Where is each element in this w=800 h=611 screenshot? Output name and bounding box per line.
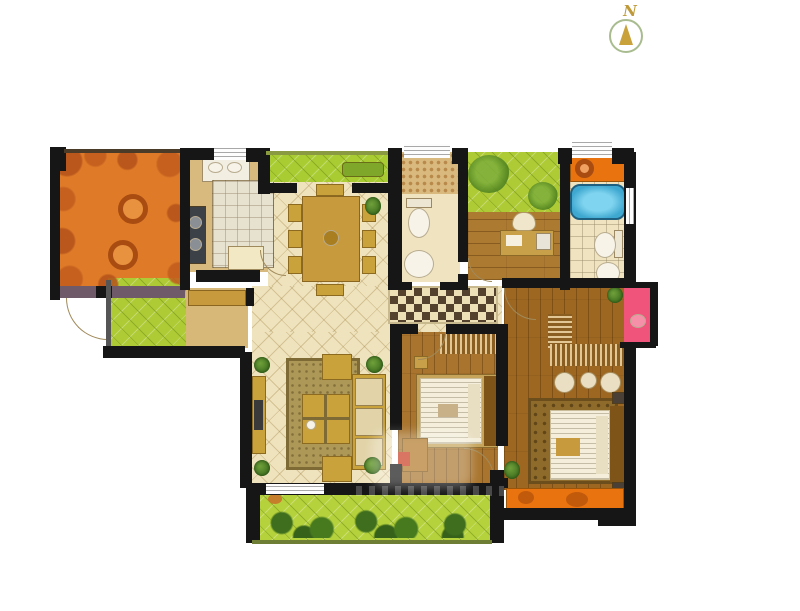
ledge-leaf — [566, 492, 588, 507]
door-arc-entry — [66, 298, 108, 340]
compass-north-label: N — [603, 2, 649, 19]
dining-chair — [362, 230, 376, 248]
watermark — [372, 432, 472, 488]
burner — [189, 216, 202, 229]
blanket — [556, 438, 580, 456]
balcony-leaf — [268, 494, 282, 504]
wall — [390, 282, 412, 290]
window-side — [626, 188, 634, 224]
pillow — [596, 416, 608, 474]
dining-chair — [316, 284, 344, 296]
wall — [196, 270, 260, 282]
desk-paper — [506, 235, 522, 246]
shoe-cabinet — [188, 290, 246, 306]
counter-sink — [575, 159, 594, 178]
wall — [440, 282, 468, 290]
pouf — [554, 372, 575, 393]
wall — [560, 150, 570, 290]
potted-plant — [607, 287, 623, 303]
window-master-bath — [572, 142, 612, 158]
wall — [240, 352, 252, 488]
armchair — [322, 354, 352, 380]
study-chair — [512, 212, 536, 231]
wall — [650, 282, 658, 346]
toilet-bowl — [594, 232, 616, 258]
terrace-chair — [118, 194, 148, 224]
window-hall-bath — [404, 144, 450, 158]
garden-bench — [342, 162, 384, 177]
wall — [246, 288, 254, 306]
balcony-door — [266, 484, 324, 494]
watermark — [356, 486, 504, 496]
wall — [50, 168, 60, 300]
pouf — [580, 372, 597, 389]
potted-plant — [254, 357, 270, 373]
wall — [266, 151, 392, 155]
bathtub — [570, 184, 626, 220]
burner — [189, 238, 202, 251]
wall — [458, 150, 468, 262]
wall — [490, 470, 504, 543]
terrace-edge-strip — [57, 286, 185, 298]
wall — [180, 148, 190, 290]
tea-set — [306, 420, 316, 430]
armchair — [322, 456, 352, 482]
wall — [64, 149, 184, 153]
platform-flower — [630, 314, 646, 328]
wall — [598, 512, 636, 526]
floor-plan: N — [0, 0, 800, 611]
tv — [254, 400, 263, 430]
sink-basin — [227, 162, 242, 173]
compass-needle-icon — [619, 24, 633, 45]
door-arc-kitchen — [260, 250, 286, 276]
garden-tree — [468, 155, 510, 193]
sink-basin — [208, 162, 223, 173]
wall — [106, 280, 111, 346]
ledge-leaf — [518, 491, 534, 504]
wash-basin — [404, 250, 434, 278]
wall — [496, 324, 508, 446]
wall — [252, 540, 492, 544]
dining-chair — [362, 256, 376, 274]
closet-horizontal — [550, 344, 628, 366]
wardrobe — [440, 334, 504, 354]
toilet-bowl — [408, 208, 430, 238]
wall — [103, 346, 245, 358]
pouf — [600, 372, 621, 393]
potted-plant — [365, 197, 381, 215]
dining-chair — [288, 230, 302, 248]
potted-plant — [504, 461, 520, 479]
wall — [446, 324, 506, 334]
wall — [388, 148, 402, 290]
dining-chair — [288, 256, 302, 274]
blanket — [438, 404, 458, 417]
compass-circle — [609, 19, 643, 53]
desk-computer — [536, 233, 551, 250]
hallway-rug — [388, 286, 498, 324]
balcony-bushes — [264, 508, 486, 538]
shower-mosaic — [400, 152, 458, 194]
potted-plant — [366, 356, 383, 373]
garden-tree — [528, 182, 558, 210]
fridge — [228, 246, 264, 270]
table-centerpiece — [323, 230, 339, 246]
potted-plant — [254, 460, 270, 476]
window-kitchen — [214, 148, 246, 160]
wall — [390, 324, 418, 334]
wall — [624, 348, 636, 512]
pillow — [468, 384, 480, 438]
dining-chair — [316, 184, 344, 196]
closet-vertical — [548, 314, 572, 348]
wall — [263, 183, 297, 193]
wall — [188, 148, 214, 160]
sofa-cushion — [355, 378, 383, 406]
terrace-chair — [108, 240, 138, 270]
compass: N — [603, 2, 649, 53]
wall — [352, 183, 390, 193]
wall — [502, 278, 630, 288]
dining-chair — [288, 204, 302, 222]
wall — [390, 334, 402, 430]
toilet-tank — [406, 198, 432, 208]
